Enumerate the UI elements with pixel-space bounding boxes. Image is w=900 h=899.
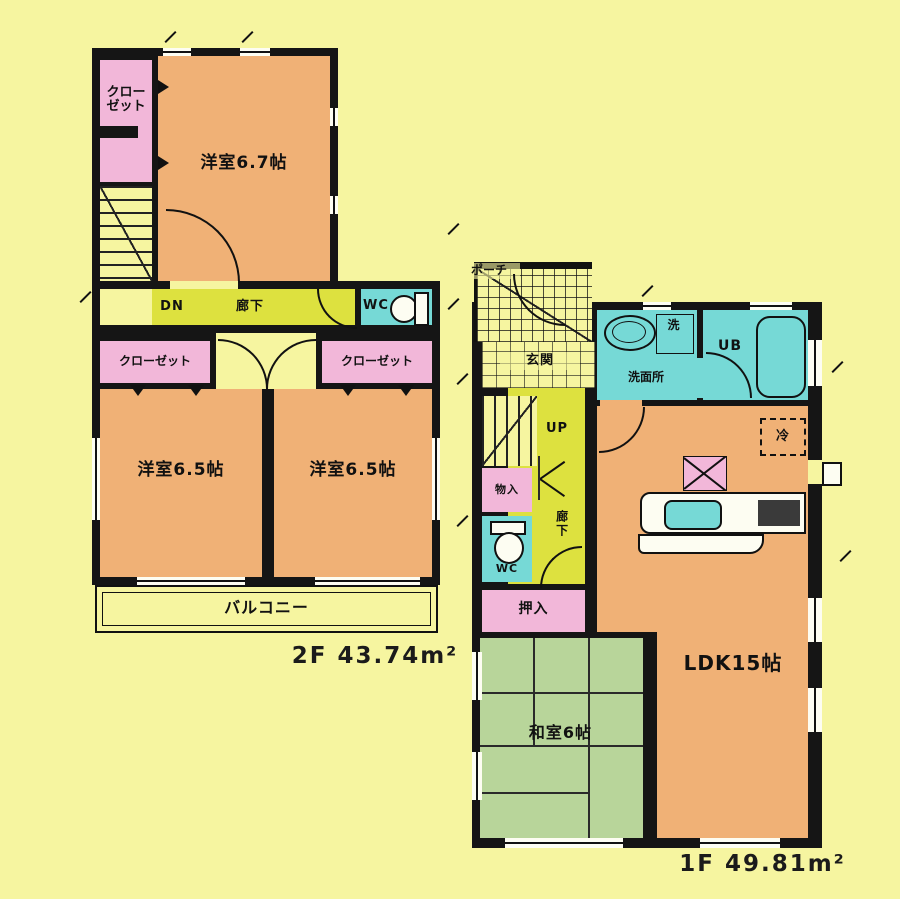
tick-mark (447, 298, 459, 310)
fridge-1f: 冷 (760, 418, 806, 456)
entrance-1f-label: 玄関 (500, 352, 580, 370)
window (432, 438, 440, 520)
window (330, 196, 338, 214)
door-opening-2f-room67 (170, 281, 238, 289)
tick-mark (456, 515, 468, 527)
tick-mark (456, 373, 468, 385)
window (505, 838, 623, 848)
room-2f-closet-left-label: クローゼット (100, 354, 210, 370)
back-door-step (822, 462, 842, 486)
tick-mark (79, 291, 91, 303)
porch-1f-label: ポーチ (458, 263, 520, 279)
room-2f-western-6-5-left-label: 洋室6.5帖 (100, 459, 262, 481)
room-2f-western-6-5-left (100, 389, 262, 577)
room-1f-storage-label: 物入 (482, 482, 532, 498)
hallway-1f-label: 廊下 (551, 492, 571, 556)
window (643, 302, 671, 310)
tatami-line (480, 792, 588, 794)
hallway-2f-label: 廊下 (222, 299, 278, 315)
tick-mark (447, 223, 459, 235)
landing-2f (100, 289, 152, 325)
fridge-1f-label: 冷 (776, 430, 790, 444)
bathtub-1f (756, 316, 806, 398)
window (240, 48, 270, 56)
room-2f-closet-top-label: クローゼット (101, 78, 151, 122)
floor1-area-label: 1F 49.81m² (635, 851, 890, 879)
tick-mark (641, 285, 653, 297)
window (315, 577, 420, 585)
closet-door-mark (158, 156, 169, 170)
room-2f-western-6-5-right-label: 洋室6.5帖 (274, 459, 432, 481)
closet-door-mark (158, 80, 169, 94)
window (808, 688, 822, 732)
window (472, 752, 482, 800)
kitchen-sink (664, 500, 722, 530)
window (700, 838, 780, 848)
door-mark (398, 385, 414, 396)
room-2f-wc-label: WC (362, 297, 390, 315)
room-2f-western-6-5-right (274, 389, 432, 577)
tick-mark (241, 31, 253, 43)
window (163, 48, 191, 56)
room-1f-washroom-label: 洗面所 (598, 370, 694, 386)
window (750, 302, 792, 310)
sink-1f-inner (612, 321, 646, 343)
stairs-1f-up-label: UP (537, 421, 577, 437)
door-mark-hall (538, 456, 540, 500)
stairs-2f-down (100, 186, 152, 281)
tick-mark (164, 31, 176, 43)
tatami-line (480, 745, 643, 747)
door-opening-1f-washroom (600, 400, 642, 406)
window (137, 577, 245, 585)
balcony-2f-label: バルコニー (95, 598, 438, 618)
door-mark (340, 385, 356, 396)
tick-mark (831, 361, 843, 373)
washer-1f-label: 洗 (656, 318, 692, 334)
kitchen-hanging-cabinet (683, 456, 727, 491)
floor2-area-label: 2F 43.74m² (250, 643, 500, 671)
stairs-1f-up (482, 396, 537, 466)
floor-plan-canvas: クローゼット 洋室6.7帖 DN 廊下 WC クローゼット クローゼット 洋室6… (0, 0, 900, 899)
room-1f-wc-label: WC (484, 561, 530, 577)
door-mark (188, 385, 204, 396)
door-opening-1f-bath (697, 358, 703, 398)
door-mark (130, 385, 146, 396)
room-2f-closet-right-label: クローゼット (322, 354, 432, 370)
window (472, 652, 482, 700)
tick-mark (839, 550, 851, 562)
hallway-2f-dn-label: DN (152, 299, 192, 315)
window (808, 340, 822, 386)
wall-2f-closet-notch (100, 126, 138, 138)
room-1f-japanese-label: 和室6帖 (498, 723, 623, 743)
cabinet-x-mark (684, 457, 727, 491)
room-1f-oshiire-label: 押入 (482, 600, 585, 620)
window (330, 108, 338, 126)
tatami-line (480, 692, 643, 694)
toilet-bowl-1f (494, 532, 524, 564)
back-door-opening (808, 460, 822, 484)
kitchen-lower-counter (638, 534, 764, 554)
room-1f-ldk-label: LDK15帖 (658, 651, 808, 675)
kitchen-stove (758, 500, 800, 526)
room-2f-western-6-7-label: 洋室6.7帖 (158, 152, 330, 174)
toilet-tank-2f (414, 292, 429, 326)
window (808, 598, 822, 642)
window (92, 438, 100, 520)
